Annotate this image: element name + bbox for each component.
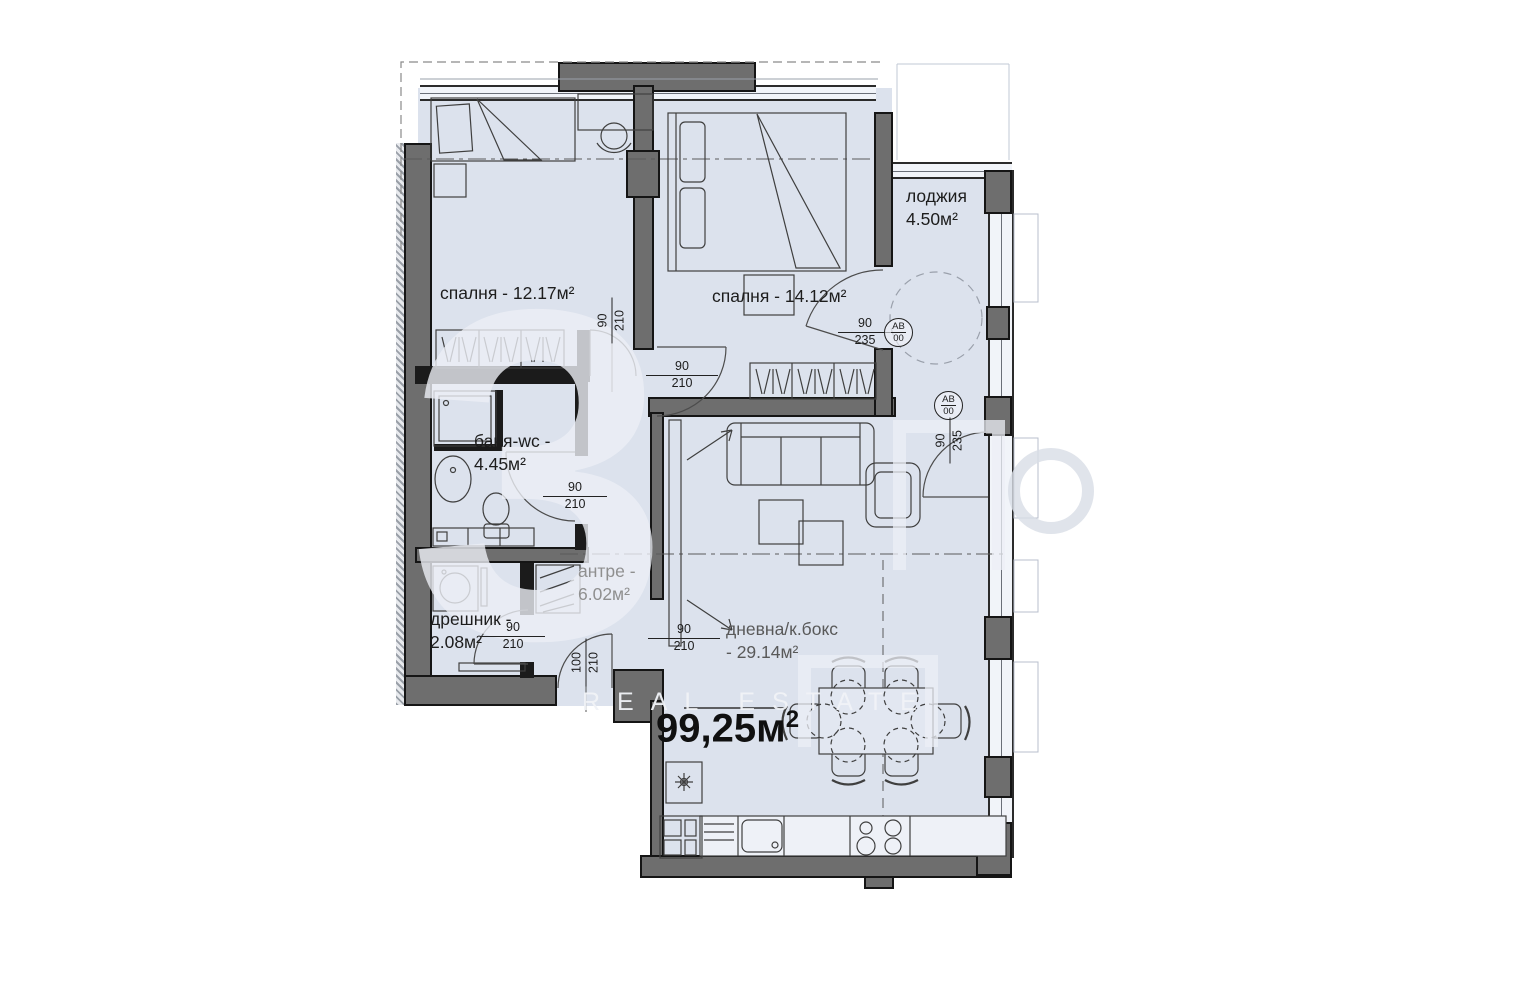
exterior-slab-tiles (1014, 214, 1038, 752)
floor-plan: 3 REAL ESTATE спалня - 12.17м² спалня - … (0, 0, 1524, 1000)
label-bedroom1: спалня - 12.17м² (440, 282, 575, 305)
boundary-dashed-line (401, 62, 882, 250)
kitchen-counter (700, 816, 1006, 856)
total-area-label: 99,25м2 (656, 706, 799, 751)
double-bed (668, 113, 846, 271)
dim-bedroom2-door: 90210 (646, 360, 718, 391)
loggia-dashed-circle (890, 272, 982, 364)
label-living: дневна/к.бокс - 29.14м² (726, 618, 838, 664)
sofa (727, 423, 874, 485)
label-bathroom: баня-wc - 4.45м² (474, 430, 550, 476)
label-loggia: лоджия 4.50м² (906, 185, 967, 231)
coffee-tables (759, 500, 843, 565)
bathroom-sink (435, 456, 471, 502)
closet-divider (481, 568, 487, 606)
label-hallway: антре - 6.02м² (578, 560, 636, 606)
single-bed (431, 98, 575, 161)
dim-living-door: 90210 (648, 623, 720, 654)
label-bedroom2: спалня - 14.12м² (712, 285, 847, 308)
toilet (483, 493, 509, 538)
dim-bedroom1-door: 90210 (597, 298, 628, 344)
washing-machine (433, 566, 478, 611)
door-tag-living-terrace: АВ00 (934, 391, 963, 420)
wardrobe-bedroom1 (436, 330, 564, 368)
dim-closet-door: 90210 (481, 621, 545, 652)
dim-living-terrace-door: 90235 (935, 418, 966, 464)
nightstand-bedroom1 (434, 164, 466, 197)
coat-rack (536, 565, 580, 613)
desk-and-chair (578, 94, 653, 152)
wardrobe-bedroom2 (750, 363, 876, 399)
kitchen-vent-icon (666, 762, 702, 803)
hall-mirror-panel (669, 420, 732, 646)
furniture-and-doors-layer (0, 0, 1524, 1000)
dining-set (783, 658, 970, 785)
dim-entry-door: 100210 (571, 639, 602, 687)
door-tag-bedroom2-loggia: АВ00 (884, 318, 913, 347)
fridge (660, 816, 702, 858)
dim-bathroom-door: 90210 (543, 481, 607, 512)
upper-structure-lines (897, 64, 1009, 160)
